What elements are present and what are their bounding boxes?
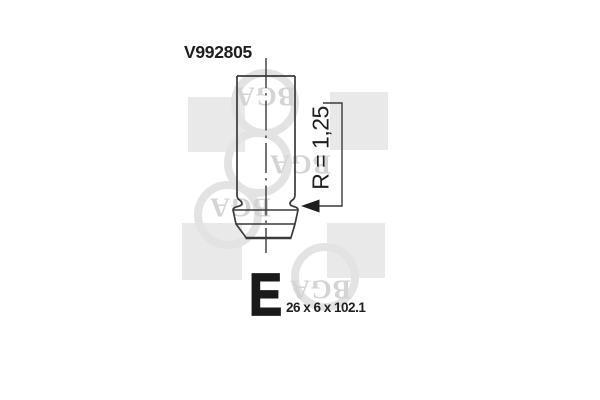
dimensions-text: 26 x 6 x 102.1 <box>286 300 365 315</box>
valve-product-image: BGA BGA BGA BGA V992805 R = 1,25 E 26 x … <box>0 0 600 400</box>
part-number: V992805 <box>184 42 252 63</box>
radius-arrow-icon <box>301 200 320 213</box>
valve-outline-left <box>233 76 246 238</box>
radius-annotation-label: R = 1,25 <box>308 106 335 190</box>
valve-technical-drawing <box>0 0 600 400</box>
size-class-letter: E <box>249 266 282 325</box>
valve-outline-right <box>290 76 298 238</box>
